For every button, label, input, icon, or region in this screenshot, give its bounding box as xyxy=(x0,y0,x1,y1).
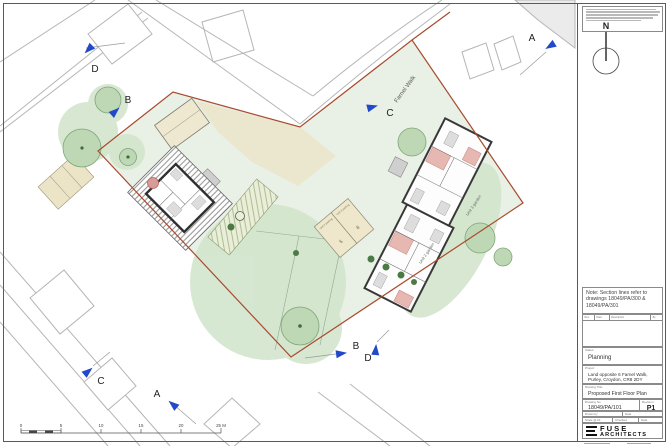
section-letter: B xyxy=(125,95,132,106)
section-letter: A xyxy=(154,389,161,400)
section-letter: C xyxy=(386,108,393,119)
notes-text-placeholder xyxy=(586,9,656,10)
scale-tick: 0 xyxy=(20,423,23,428)
section-marker-a-top: A xyxy=(529,33,557,52)
scale-bar: 0 5 10 15 20 25 M xyxy=(20,423,226,433)
logo-line1: FUSE xyxy=(600,425,647,432)
section-letter: D xyxy=(91,64,98,75)
date-label: Date xyxy=(623,412,662,416)
section-marker-d-bottom: D xyxy=(364,344,380,364)
checked-label: Checked xyxy=(613,418,638,422)
drawing-sheet: Unit 2 parking Unit 3 parking 5 6 xyxy=(0,0,670,446)
contact-text-placeholder xyxy=(627,440,662,444)
notes-text-placeholder xyxy=(586,11,660,12)
architect-logo: FUSE ARCHITECTS xyxy=(582,423,663,439)
scale-tick: 25 M xyxy=(216,423,226,428)
section-note: Note: Section lines refer to drawings 18… xyxy=(582,287,663,314)
contact-details xyxy=(582,439,663,445)
title-block: N Note: Section lines refer to drawings … xyxy=(577,3,666,442)
revision-value: P1 xyxy=(640,405,662,411)
logo-line2: ARCHITECTS xyxy=(600,432,647,438)
revision-table: Rev Date Description By xyxy=(582,314,663,347)
contact-text-placeholder xyxy=(584,440,619,444)
unit1-tree-marker xyxy=(148,178,159,189)
scale-tick: 5 xyxy=(60,423,63,428)
drawn-by-label: Drawn by xyxy=(583,412,622,416)
project-value: Land opposite 6 Farnel Walk, Purley, Cro… xyxy=(583,371,662,383)
rev-col-description: Description xyxy=(610,315,651,320)
turning-symbol xyxy=(236,212,245,221)
status-value: Planning xyxy=(583,353,662,361)
section-marker-a-bottom: A xyxy=(154,389,180,411)
north-arrow: N xyxy=(584,17,628,81)
scale-tick: 20 xyxy=(179,423,184,428)
rev-col-rev: Rev xyxy=(583,315,595,320)
section-letter: B xyxy=(353,341,360,352)
status-field: Status Planning xyxy=(582,347,663,365)
notes-text-placeholder xyxy=(586,14,658,15)
section-letter: A xyxy=(529,33,536,44)
section-marker-b-bottom: B xyxy=(336,341,360,358)
rev-col-date: Date xyxy=(595,315,610,320)
drawing-title-field: Drawing Title Proposed First Floor Plan xyxy=(582,384,663,399)
site-plan-canvas: Unit 2 parking Unit 3 parking 5 6 xyxy=(0,0,670,446)
date-label: Date xyxy=(639,418,662,422)
drawing-number-row: Drawing No 18049/PA/101 Revision P1 xyxy=(582,399,663,411)
section-letter: D xyxy=(364,353,371,364)
section-letter: C xyxy=(97,376,104,387)
scale-tick: 15 xyxy=(139,423,144,428)
north-label: N xyxy=(603,21,610,31)
drawing-no-value: 18049/PA/101 xyxy=(583,405,639,411)
scale-tick: 10 xyxy=(99,423,104,428)
drawing-title-value: Proposed First Floor Plan xyxy=(583,390,662,398)
scale-label: Scale @ A1 xyxy=(583,418,612,422)
fuse-logo-icon xyxy=(586,426,597,436)
rev-col-by: By xyxy=(651,315,662,320)
project-field: Project Land opposite 6 Farnel Walk, Pur… xyxy=(582,365,663,384)
